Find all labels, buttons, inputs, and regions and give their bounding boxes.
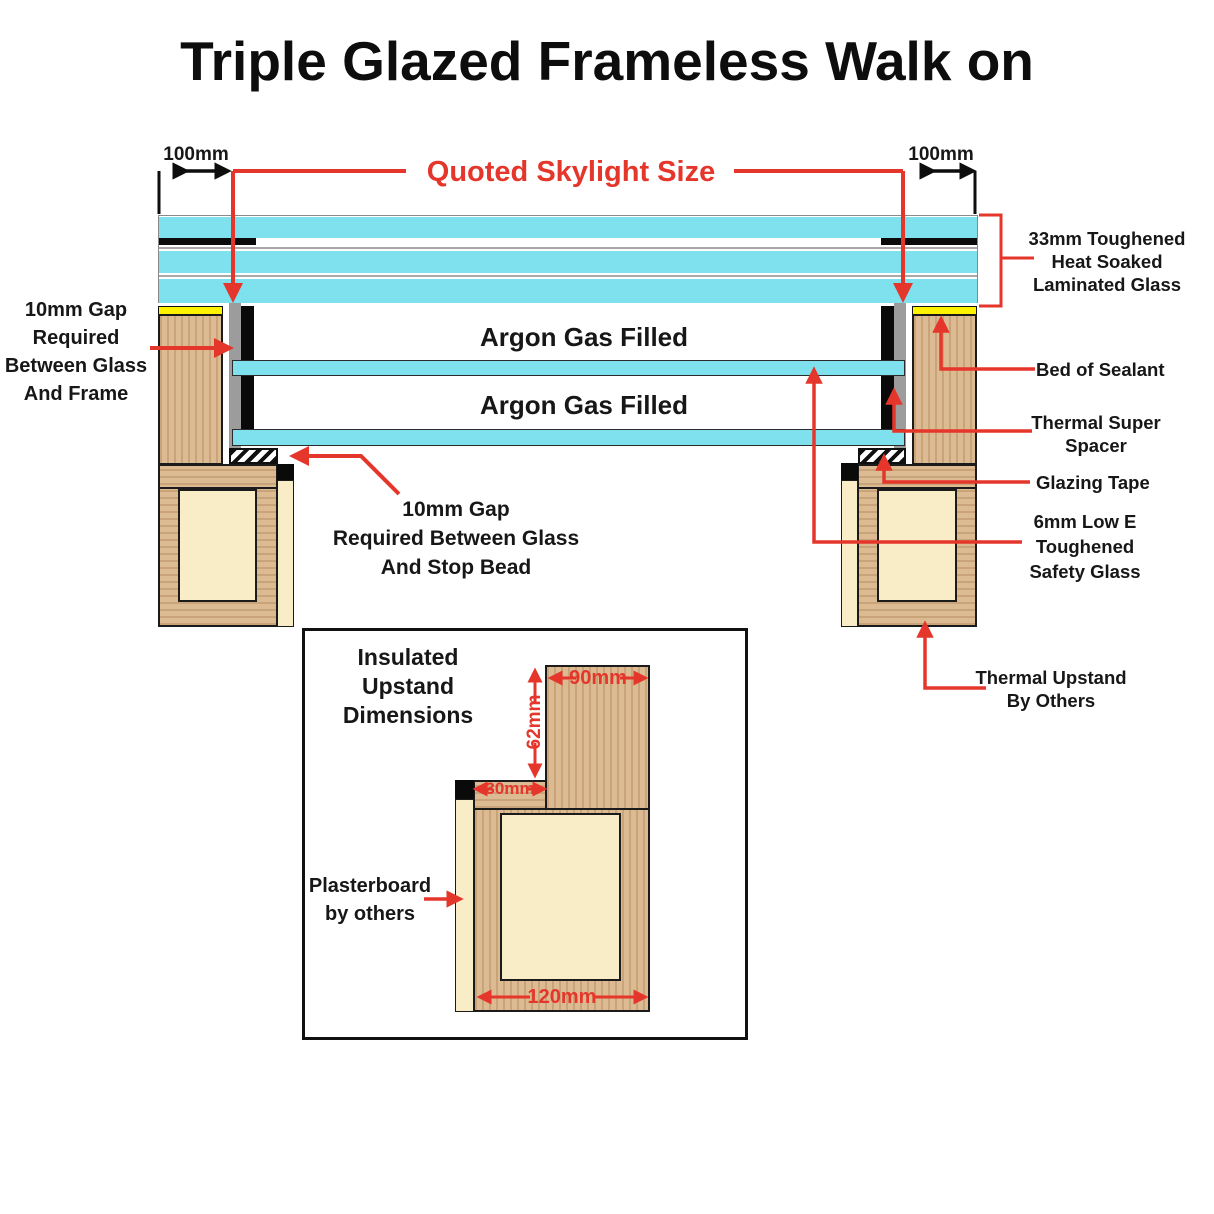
inset-stop-bead-cap [455, 780, 474, 799]
plasterboard-line-1: Plasterboard [300, 872, 440, 900]
quoted-skylight-size-label: Quoted Skylight Size [408, 155, 734, 189]
stop-bead-cap-left [277, 464, 294, 480]
gap-frame-line-4: And Frame [0, 380, 152, 408]
inset-dim-30-label: 30mm [483, 779, 537, 799]
laminated-glass-panel [158, 215, 978, 303]
glazing-tape-label: Glazing Tape [1036, 472, 1176, 494]
dim-100mm-left-label: 100mm [160, 144, 232, 166]
glazing-tape-right [858, 448, 906, 464]
glass-bracket-path [979, 215, 1001, 306]
toughened-line-2: Heat Soaked [1028, 250, 1186, 273]
low-e-line-3: Safety Glass [1020, 559, 1150, 584]
glass-ply-3 [159, 279, 977, 303]
inset-plasterboard-strip [455, 799, 474, 1012]
thermal-upstand-label: Thermal Upstand By Others [962, 666, 1140, 712]
leader-gap-stop-bead [307, 456, 399, 494]
gap-frame-line-1: 10mm Gap [0, 296, 152, 324]
thermal-spacer-label: Thermal Super Spacer [1022, 411, 1170, 457]
toughened-line-1: 33mm Toughened [1028, 227, 1186, 250]
gap-stop-bead-line-3: And Stop Bead [300, 553, 612, 582]
inset-title: Insulated Upstand Dimensions [312, 643, 504, 730]
argon-gas-label-2: Argon Gas Filled [384, 390, 784, 420]
thermal-spacer-left-top [241, 306, 254, 361]
toughened-glass-label: 33mm Toughened Heat Soaked Laminated Gla… [1028, 227, 1186, 296]
upstand-column-right [912, 314, 977, 465]
glass-frit-left [159, 238, 256, 245]
stop-bead-left [277, 480, 294, 627]
spacer-backer-left [229, 303, 241, 449]
interlayer-line-2 [159, 275, 977, 277]
gap-frame-label: 10mm Gap Required Between Glass And Fram… [0, 296, 152, 408]
insulation-core-left [178, 489, 257, 602]
thermal-spacer-line-2: Spacer [1022, 434, 1170, 457]
glazing-tape-left [229, 448, 278, 464]
page-title: Triple Glazed Frameless Walk on [0, 30, 1214, 92]
thermal-spacer-left-bottom [241, 375, 254, 431]
upstand-column-left [158, 314, 223, 465]
stop-bead-cap-right [841, 463, 858, 480]
inner-glass-pane-bottom [232, 429, 905, 446]
dim-100mm-right-label: 100mm [905, 144, 977, 166]
plasterboard-line-2: by others [300, 900, 440, 928]
inset-dim-120-label: 120mm [520, 986, 604, 1009]
inset-dim-62-label: 62mm [524, 691, 546, 753]
insulation-core-right [877, 489, 957, 602]
thermal-upstand-line-2: By Others [962, 689, 1140, 712]
interlayer-line-1 [159, 247, 977, 249]
low-e-line-1: 6mm Low E [1020, 509, 1150, 534]
bed-of-sealant-label: Bed of Sealant [1036, 359, 1196, 381]
thermal-spacer-right-top [881, 306, 894, 361]
stop-bead-right [841, 480, 858, 627]
thermal-spacer-line-1: Thermal Super [1022, 411, 1170, 434]
inset-title-line-2: Dimensions [312, 701, 504, 730]
glass-bracket [979, 215, 1034, 306]
glass-ply-2 [159, 251, 977, 273]
gap-stop-bead-line-2: Required Between Glass [300, 524, 612, 553]
inner-glass-pane-middle [232, 360, 905, 376]
thermal-spacer-right-bottom [881, 375, 894, 431]
plasterboard-label: Plasterboard by others [300, 872, 440, 928]
toughened-line-3: Laminated Glass [1028, 273, 1186, 296]
thermal-upstand-line-1: Thermal Upstand [962, 666, 1140, 689]
glass-frit-right [881, 238, 977, 245]
diagram-page: Triple Glazed Frameless Walk on 100mm 10… [0, 0, 1214, 1214]
glass-ply-1 [159, 217, 977, 238]
low-e-glass-label: 6mm Low E Toughened Safety Glass [1020, 509, 1150, 584]
gap-stop-bead-line-1: 10mm Gap [300, 495, 612, 524]
gap-stop-bead-label: 10mm Gap Required Between Glass And Stop… [300, 495, 612, 582]
low-e-line-2: Toughened [1020, 534, 1150, 559]
gap-frame-line-3: Between Glass [0, 352, 152, 380]
spacer-backer-right [894, 303, 906, 449]
inset-title-line-1: Insulated Upstand [312, 643, 504, 701]
inset-insulation-core [500, 813, 621, 981]
gap-frame-line-2: Required [0, 324, 152, 352]
argon-gas-label-1: Argon Gas Filled [384, 322, 784, 352]
inset-dim-90-label: 90mm [560, 667, 636, 690]
